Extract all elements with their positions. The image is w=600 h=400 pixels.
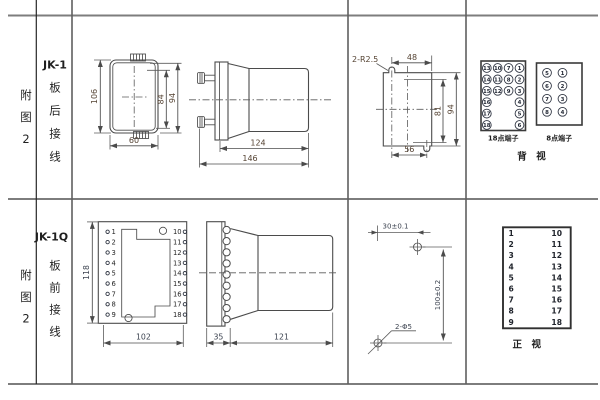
dim-hole-spacing-x: 30±0.1 [383,222,409,230]
pin-number: 6 [112,280,116,288]
pin-number: 10 [173,228,182,236]
terminal-number: 5 [545,71,549,77]
terminal-number: 6 [518,123,522,129]
pin-hole [106,230,109,233]
taper-lines [231,229,259,320]
terminal-screw [198,117,216,128]
pin-hole [183,292,186,295]
pin-hole [183,303,186,306]
table-number-right: 15 [551,285,562,294]
terminal-number: 14 [483,77,491,83]
screw-knurl [200,73,202,84]
table-number-left: 9 [509,318,514,327]
terminal-number: 8 [545,110,549,116]
pin-number: 4 [112,259,116,267]
terminal-bump [223,226,230,233]
pin-hole [183,272,186,275]
front-view-label: 正 视 [513,339,542,351]
table-number-right: 16 [551,296,562,305]
terminal-bump [223,249,230,256]
pin-number: 9 [112,311,116,319]
pin-number: 8 [112,301,116,309]
relay-side-view-front-wiring: 35 121 [199,222,337,347]
screw-shaft [205,75,216,81]
slot-callout: 2-R2.5 [352,55,378,64]
pin-number: 14 [173,270,182,278]
terminal-8-caption: 8点端子 [546,134,572,143]
figure-label-char: 2 [22,312,29,326]
leader-line [368,331,392,354]
pin-hole [183,261,186,264]
wiring-label-char: 接 [49,303,61,317]
terminal-number: 1 [561,71,565,77]
front-plate [207,222,225,326]
terminal-table-numbers: 123456789101112131415161718 [509,229,563,327]
pin-number: 11 [173,239,182,247]
figure-label-char: 附 [20,268,32,282]
terminal-number: 17 [483,112,491,118]
terminal-bump [223,316,230,323]
terminal-number: 18 [483,123,491,129]
terminal-number: 12 [494,89,502,95]
terminal-number: 11 [494,77,502,83]
pin-number: 12 [173,249,182,257]
terminal-bump [223,260,230,267]
wiring-label-char: 接 [49,127,61,141]
dim-overall-height: 94 [168,93,177,103]
pin-number: 15 [173,280,182,288]
table-number-right: 12 [551,251,562,260]
wiring-label-char: 线 [49,150,61,164]
pin-hole [106,261,109,264]
dim-height-outer: 94 [447,104,456,114]
model-label: JK-1 [42,59,67,72]
wiring-label-char: 后 [49,104,61,118]
model-label: JK-1Q [34,231,68,244]
terminal-number: 5 [518,112,522,118]
terminal-bump [223,271,230,278]
rear-view-label: 背 视 [517,151,546,163]
pin-hole [183,282,186,285]
pin-hole [106,251,109,254]
terminal-number: 4 [518,100,522,106]
pin-number: 17 [173,301,182,309]
terminal-number: 7 [507,66,511,72]
dim-height: 118 [82,265,91,280]
terminal-number: 1 [518,66,522,72]
terminal-number: 2 [518,77,522,83]
terminal-18-caption: 18点端子 [488,134,519,143]
terminal-number: 8 [507,77,511,83]
dim-body-depth: 121 [274,333,289,342]
drill-plan: 30±0.1 100±0.2 2-Φ5 [368,222,452,354]
wiring-label-char: 前 [49,281,61,295]
table-number-right: 14 [551,273,562,282]
table-number-left: 5 [509,273,514,282]
pin-number: 2 [112,239,116,247]
leader-line [377,64,389,71]
panel-cutout-view: 2-R2.5 48 81 94 56 [352,53,461,158]
dim-body-depth: 124 [250,139,265,148]
pin-hole [183,230,186,233]
terminal-number: 10 [494,66,502,72]
terminal-number: 2 [561,84,565,90]
relay-front-view: 106 60 84 94 [90,54,182,150]
table-number-right: 10 [551,229,562,238]
mounting-hole [125,314,132,321]
figure-label-char: 图 [20,110,32,124]
figure-label-char: 附 [20,88,32,102]
dim-body-height: 84 [157,94,166,104]
pin-hole [183,240,186,243]
terminal-8-box [537,63,583,125]
pin-number: 5 [112,270,116,278]
dim-width: 102 [136,333,151,342]
taper-lines [228,64,249,139]
front-view-terminal-table: 123456789101112131415161718 正 视 [503,227,571,350]
pin-number: 13 [173,259,182,267]
relay-side-view: 124 146 [189,62,332,168]
terminal-18-grid: 131071141182151293164175186 [482,64,523,130]
terminal-screw [198,73,216,84]
terminal-number: 15 [483,89,491,95]
connector-pins: 123456789101112131415161718 [106,228,187,319]
screw-head [198,73,205,84]
table-number-right: 13 [551,262,562,271]
pin-hole [106,272,109,275]
terminal-number: 6 [545,84,549,90]
pin-number: 16 [173,290,182,298]
terminal-bump [223,293,230,300]
pin-hole [106,292,109,295]
row1-labels: 附 图 2 JK-1 板 后 接 线 [20,59,67,164]
pin-number: 7 [112,290,116,298]
technical-drawing-page: 附 图 2 JK-1 板 后 接 线 附 图 2 JK-1Q 板 前 接 线 1… [0,0,600,400]
terminal-number: 3 [561,97,565,103]
dim-width: 60 [129,136,139,145]
pin-number: 18 [173,311,182,319]
terminal-bump [223,238,230,245]
pin-hole [106,282,109,285]
terminal-bump [223,304,230,311]
dim-height-inner: 81 [433,106,442,116]
drawing-canvas: 附 图 2 JK-1 板 后 接 线 附 图 2 JK-1Q 板 前 接 线 1… [0,0,600,400]
wiring-label-char: 板 [49,81,61,95]
table-number-left: 1 [509,229,514,238]
terminal-number: 4 [561,110,565,116]
figure-label-char: 2 [22,132,29,146]
screw-knurl [200,117,202,128]
table-number-left: 6 [509,285,514,294]
table-number-left: 2 [509,240,514,249]
mounting-hole [159,227,166,234]
terminal-bump [223,282,230,289]
flange [215,62,228,140]
dim-hole-spacing-y: 100±0.2 [434,280,442,310]
table-number-right: 18 [551,318,562,327]
wiring-label-char: 线 [49,325,61,339]
pin-hole [183,313,186,316]
dim-bottom-width: 56 [404,145,414,154]
table-number-left: 7 [509,296,514,305]
terminal-8-grid: 51627384 [543,68,567,116]
terminal-number: 13 [483,66,491,72]
terminal-number: 9 [507,89,511,95]
terminal-number: 7 [545,97,549,103]
wiring-label-char: 板 [49,259,61,273]
terminal-bumps [223,226,230,322]
row2-labels: 附 图 2 JK-1Q 板 前 接 线 [20,231,68,339]
terminal-number: 3 [518,89,522,95]
table-number-left: 8 [509,307,514,316]
figure-label-char: 图 [20,290,32,304]
dim-height: 106 [90,89,99,104]
dim-plate-depth: 35 [213,333,223,342]
pin-hole [106,313,109,316]
pin-hole [183,251,186,254]
terminal-number: 16 [483,100,491,106]
table-number-right: 17 [551,307,562,316]
hole-size-callout: 2-Φ5 [395,323,412,331]
connector-front-view: 123456789101112131415161718 118 102 [82,222,187,347]
pin-number: 1 [112,228,116,236]
screw-head [198,117,205,128]
pin-hole [106,303,109,306]
table-number-left: 4 [509,262,514,271]
screw-shaft [205,119,216,125]
table-number-left: 3 [509,251,514,260]
connector-inner-shape [122,229,170,317]
table-number-right: 11 [551,240,562,249]
pin-number: 3 [112,249,116,257]
dim-overall-depth: 146 [242,154,257,163]
rear-view-terminals: 131071141182151293164175186 51627384 18点… [481,61,582,163]
pin-hole [106,240,109,243]
dim-top-width: 48 [407,53,417,62]
